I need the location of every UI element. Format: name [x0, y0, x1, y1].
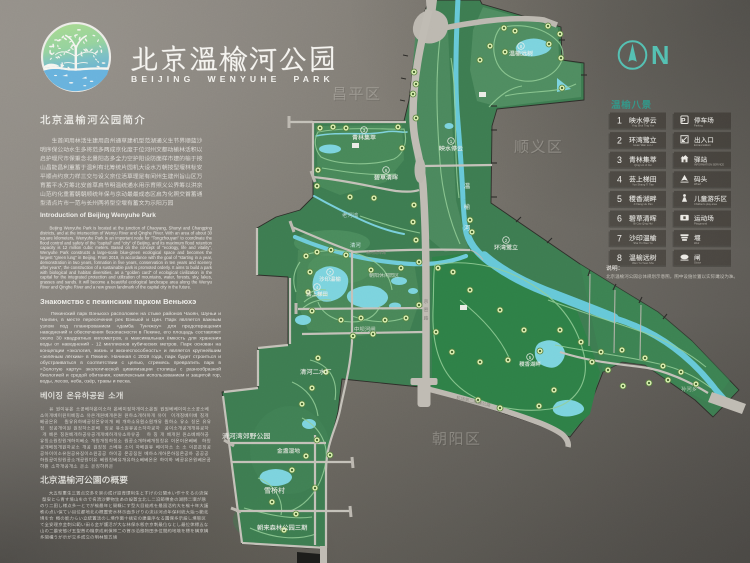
svg-text:Weir: Weir	[694, 241, 699, 245]
svg-text:1: 1	[617, 116, 622, 126]
svg-text:Playground: Playground	[694, 221, 708, 225]
svg-text:INFORMATION SERVICE: INFORMATION SERVICE	[694, 163, 724, 167]
svg-text:Parking: Parking	[694, 123, 703, 127]
svg-text:Qing Lin Ji Cui: Qing Lin Ji Cui	[634, 163, 652, 167]
svg-text:3: 3	[617, 155, 622, 165]
svg-text:6: 6	[617, 214, 622, 224]
svg-text:Wharf: Wharf	[694, 182, 701, 186]
svg-text:Sluice: Sluice	[694, 261, 702, 265]
svg-text:Bi Cao Qing Hui: Bi Cao Qing Hui	[633, 222, 653, 226]
svg-text:Ji Xiang Hu Pan: Ji Xiang Hu Pan	[633, 202, 653, 206]
svg-text:7: 7	[617, 233, 622, 243]
svg-text:Sha Yin Wen Yu: Sha Yin Wen Yu	[633, 241, 653, 245]
svg-text:Children's play area: Children's play area	[694, 202, 717, 206]
svg-text:.: .	[687, 120, 688, 124]
svg-text:2: 2	[617, 135, 622, 145]
svg-text:P: P	[681, 117, 686, 124]
svg-text:Wen Yu Yuan Shu: Wen Yu Yuan Shu	[632, 261, 654, 265]
svg-text:5: 5	[617, 194, 622, 204]
svg-text:4: 4	[617, 175, 622, 185]
svg-text:Entrance&Exit: Entrance&Exit	[694, 143, 711, 147]
svg-text:8: 8	[617, 253, 622, 263]
svg-text:Huan Wan Lu Li: Huan Wan Lu Li	[633, 143, 653, 147]
svg-text:Ying Shui Ting Yun: Ying Shui Ting Yun	[632, 124, 655, 128]
svg-text:Yun Shang Ti Tian: Yun Shang Ti Tian	[632, 182, 654, 186]
